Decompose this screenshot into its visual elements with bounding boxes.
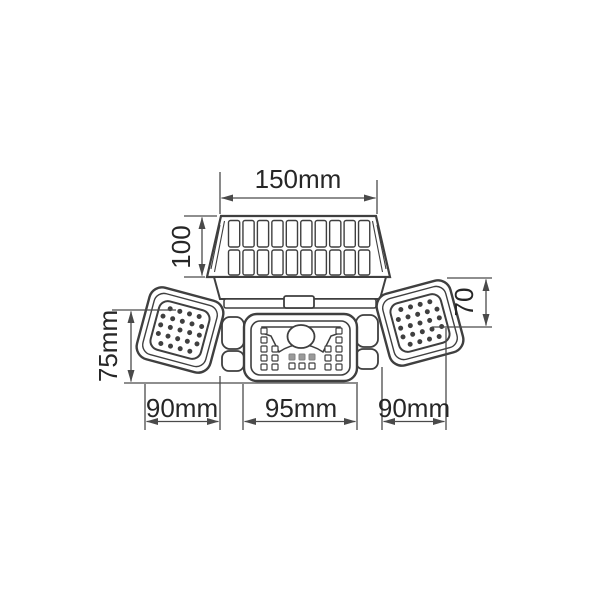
dimension-bottom-left-width: 90mm xyxy=(145,376,220,430)
led-square-shaded xyxy=(299,354,305,360)
dim-label-70: 70 xyxy=(449,288,479,317)
led-square xyxy=(336,328,342,334)
solar-cell xyxy=(359,221,370,248)
solar-cell xyxy=(272,221,283,248)
solar-cell xyxy=(315,221,326,248)
dim-label-90mm-right: 90mm xyxy=(378,393,450,423)
technical-drawing-page: 150mm 100 75mm 70 90mm 95mm xyxy=(0,0,600,600)
led-square xyxy=(261,346,267,352)
led-square xyxy=(309,363,315,369)
led-square xyxy=(261,364,267,370)
solar-cell xyxy=(301,250,312,275)
led-square xyxy=(261,355,267,361)
solar-light-technical-drawing: 150mm 100 75mm 70 90mm 95mm xyxy=(0,0,600,600)
led-square-shaded xyxy=(309,354,315,360)
left-arm xyxy=(222,317,244,371)
left-lamp xyxy=(134,284,227,375)
hinge-tab xyxy=(284,296,314,308)
led-square xyxy=(261,328,267,334)
dim-label-100: 100 xyxy=(166,225,196,268)
led-square xyxy=(289,363,295,369)
solar-cell xyxy=(243,250,254,275)
led-square xyxy=(272,346,278,352)
led-square xyxy=(336,337,342,343)
solar-cell xyxy=(257,221,268,248)
led-square xyxy=(336,355,342,361)
solar-cell xyxy=(286,221,297,248)
led-square xyxy=(325,346,331,352)
solar-cell xyxy=(286,250,297,275)
pir-sensor xyxy=(288,325,315,348)
led-square xyxy=(325,355,331,361)
dim-label-90mm-left: 90mm xyxy=(146,393,218,423)
led-square xyxy=(261,337,267,343)
solar-cell xyxy=(229,221,240,248)
solar-cell xyxy=(330,250,341,275)
led-square xyxy=(336,346,342,352)
solar-cell xyxy=(272,250,283,275)
right-arm xyxy=(356,315,378,369)
solar-cell xyxy=(243,221,254,248)
dimension-solar-panel-width: 150mm xyxy=(220,164,377,214)
solar-panel xyxy=(207,216,390,277)
solar-cell xyxy=(344,250,355,275)
led-square-shaded xyxy=(289,354,295,360)
dim-label-75mm: 75mm xyxy=(93,310,123,382)
solar-cell xyxy=(330,221,341,248)
dimension-bottom-center-width: 95mm xyxy=(243,382,357,430)
solar-cell xyxy=(257,250,268,275)
led-square xyxy=(325,364,331,370)
dim-label-95mm: 95mm xyxy=(265,393,337,423)
led-square xyxy=(272,364,278,370)
led-square xyxy=(272,355,278,361)
led-square xyxy=(299,363,305,369)
solar-cell xyxy=(344,221,355,248)
center-lamp xyxy=(244,314,357,381)
solar-cell xyxy=(229,250,240,275)
solar-cell xyxy=(315,250,326,275)
dim-label-150mm: 150mm xyxy=(255,164,342,194)
solar-cell xyxy=(301,221,312,248)
solar-cell xyxy=(359,250,370,275)
led-square xyxy=(336,364,342,370)
